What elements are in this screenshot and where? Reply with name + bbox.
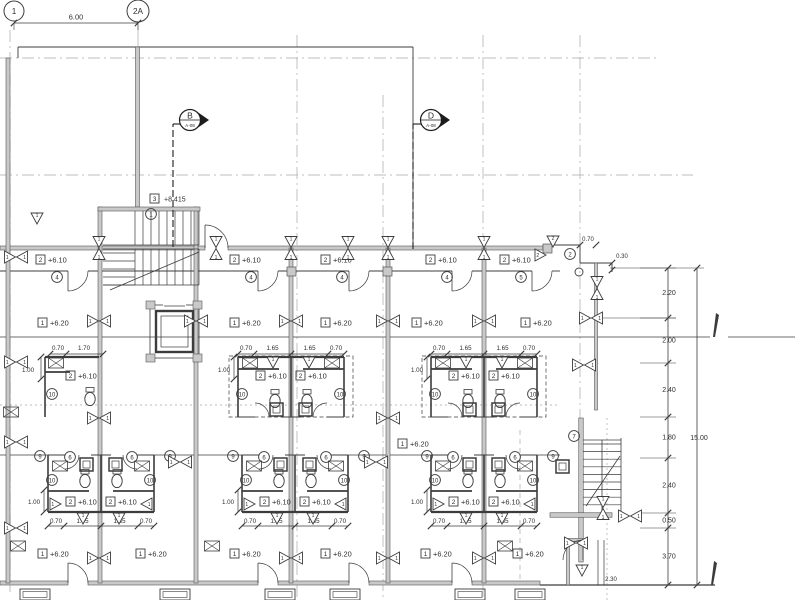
level-box-tag: 2 xyxy=(106,497,115,506)
tag-number: 1 xyxy=(148,502,151,508)
elevator-jamb xyxy=(146,301,155,309)
door-window-tag: 1 xyxy=(460,357,472,368)
keynote-tag: 10 xyxy=(241,475,252,486)
toilet-tank xyxy=(496,390,504,395)
tag-number: 1 xyxy=(89,416,92,422)
threshold xyxy=(268,592,292,598)
rect xyxy=(495,461,502,468)
dim-text: 2.30 xyxy=(605,577,617,583)
level-text: +6.10 xyxy=(78,498,97,507)
tag-number: 1 xyxy=(395,319,398,325)
rect xyxy=(83,461,90,468)
keynote-number: 7 xyxy=(572,434,576,440)
keynote-number: 4 xyxy=(249,275,253,281)
room-level-label: 1+6.20 xyxy=(398,439,429,449)
level-text: +6.20 xyxy=(433,550,452,559)
stairs-layer xyxy=(103,211,621,520)
dim-text: 2 xyxy=(69,373,73,380)
door-swing xyxy=(258,563,278,583)
tag-number: 1 xyxy=(483,255,486,261)
keynote-number: 10 xyxy=(530,392,537,398)
level-box-tag: 2 xyxy=(449,497,458,506)
toilet-bowl xyxy=(302,394,312,407)
section-letter: B xyxy=(187,111,193,121)
door-window-tag: 1 xyxy=(580,312,591,324)
column xyxy=(383,267,392,276)
dim-text: 1.65 xyxy=(459,345,472,352)
dim-text: 2 xyxy=(233,257,237,264)
shower-box xyxy=(274,458,287,471)
sink-fixture xyxy=(53,461,68,471)
door-window-tag: 1 xyxy=(169,456,180,468)
toilet-bowl xyxy=(85,392,95,405)
tag-number: 1 xyxy=(23,360,26,366)
dim-text: 1 xyxy=(233,551,237,558)
dim-text: 1 xyxy=(415,320,419,327)
tag-number: 1 xyxy=(106,556,109,562)
room-level-label: 1+6.20 xyxy=(412,318,443,328)
door-window-tag: 1 xyxy=(524,498,535,510)
keynote-number: 4 xyxy=(340,275,344,281)
sink-fixture xyxy=(243,358,258,368)
dim-text: 2 xyxy=(492,373,496,380)
sink-fixture xyxy=(436,461,451,471)
threshold xyxy=(518,592,542,598)
room-level-label: 1+6.20 xyxy=(321,549,352,559)
keynote-tag: 10 xyxy=(47,389,58,400)
dim-text: 1.00 xyxy=(411,367,424,374)
door-swing xyxy=(532,271,552,291)
door-window-tag: 1 xyxy=(50,498,61,510)
dim-text: 1 xyxy=(41,551,45,558)
rect xyxy=(492,458,505,471)
level-box-tag: 2 xyxy=(300,497,309,506)
level-box-tag: 2 xyxy=(66,497,75,506)
section-marker-d: DA-08 xyxy=(421,110,451,131)
level-box-tag: 1 xyxy=(513,549,522,558)
tag-number: 1 xyxy=(620,514,623,520)
keynote-tag: 6 xyxy=(127,452,138,463)
door-window-tag: 1 xyxy=(88,552,99,564)
tag-number: 1 xyxy=(383,460,386,466)
tag-number: 1 xyxy=(581,316,584,322)
room-level-label: 1+6.20 xyxy=(38,549,69,559)
tag-number: 1 xyxy=(298,319,301,325)
dim-text: 0.70 xyxy=(240,345,253,352)
keynote-number: 10 xyxy=(239,392,246,398)
dim-text: 1.65 xyxy=(303,345,316,352)
threshold xyxy=(455,589,485,600)
keynote-tag: 10 xyxy=(47,475,58,486)
threshold xyxy=(23,592,47,598)
keynote-tag: 6 xyxy=(65,452,76,463)
tag-number: 1 xyxy=(637,514,640,520)
door-window-tag: 1 xyxy=(181,456,192,468)
door-swing xyxy=(452,563,472,583)
corridor-level-label: 2+6.10 xyxy=(426,255,457,265)
sink-fixture xyxy=(135,461,150,471)
tag-number: 1 xyxy=(596,277,599,283)
level-box-tag: 2 xyxy=(256,371,265,380)
pod-level-label: 2+6.10 xyxy=(296,371,327,381)
level-box-tag: 1 xyxy=(412,318,421,327)
keynote-number: 6 xyxy=(451,455,455,461)
level-text: +8.415 xyxy=(164,197,186,204)
wall xyxy=(194,207,198,583)
toilet-fixture xyxy=(274,470,284,488)
room-level-label: 1+6.20 xyxy=(230,318,261,328)
keynote-number: 10 xyxy=(49,392,56,398)
level-box-tag: 2 xyxy=(489,497,498,506)
tag-number: 1 xyxy=(531,502,534,508)
dim-text: 1.00 xyxy=(28,499,41,506)
door-window-tag: 1 xyxy=(433,498,444,510)
wall xyxy=(278,581,349,585)
dim-text: 6.00 xyxy=(69,13,83,22)
elevator-door-gap xyxy=(163,302,186,309)
room-level-label: 1+6.20 xyxy=(521,318,552,328)
tag-number: 2 xyxy=(536,253,539,259)
level-text: +6.20 xyxy=(242,319,261,328)
threshold xyxy=(333,592,357,598)
door-window-tag: 1 xyxy=(591,289,603,302)
keynote-number: 10 xyxy=(341,478,348,484)
keynote-number: 1 xyxy=(149,212,153,218)
break-flag xyxy=(713,313,719,337)
dim-text: 1.00 xyxy=(411,499,424,506)
keynote-tag: 6 xyxy=(510,452,521,463)
dim-text: 0.50 xyxy=(662,518,676,525)
level-box-tag: 1 xyxy=(136,549,145,558)
elevator-jamb xyxy=(146,354,155,362)
tag-number: 1 xyxy=(6,360,9,366)
level-box-tag: 2 xyxy=(230,255,239,264)
door-window-tag: 1 xyxy=(93,249,105,262)
tag-number: 1 xyxy=(272,357,275,363)
level-text: +6.20 xyxy=(525,550,544,559)
tag-number: 1 xyxy=(566,541,569,547)
wall xyxy=(228,246,543,250)
shower-box xyxy=(109,458,122,471)
elevator-jamb xyxy=(193,354,202,362)
tag-number: 1 xyxy=(186,319,189,325)
column xyxy=(543,244,552,253)
wall xyxy=(88,581,258,585)
keynote-number: 6 xyxy=(324,455,328,461)
dim-text: 1.70 xyxy=(78,345,91,352)
toilet-bowl xyxy=(270,394,280,407)
dim-text: 2 xyxy=(503,257,507,264)
tag-number: 1 xyxy=(366,460,369,466)
pod-level-label: 2+6.10 xyxy=(489,371,520,381)
dim-text: 1 xyxy=(424,551,428,558)
rect xyxy=(109,458,122,471)
threshold xyxy=(160,589,190,600)
tag-number: 1 xyxy=(583,541,586,547)
tag-number: 1 xyxy=(215,255,218,261)
tag-number: 1 xyxy=(602,515,605,521)
toilet-tank xyxy=(86,388,94,393)
level-text: +6.10 xyxy=(308,372,327,381)
wall xyxy=(386,248,390,583)
threshold xyxy=(265,589,295,600)
level-box-tag: 2 xyxy=(321,255,330,264)
dim-text: 0.70 xyxy=(523,518,536,525)
level-box-tag: 1 xyxy=(38,549,47,558)
level-text: +6.20 xyxy=(50,550,69,559)
tag-number: 1 xyxy=(89,556,92,562)
tag-number: 1 xyxy=(290,255,293,261)
tag-number: 1 xyxy=(465,513,468,519)
door-window-tag: 1 xyxy=(88,315,99,327)
tag-number: 1 xyxy=(483,237,486,243)
tag-number: 1 xyxy=(387,255,390,261)
tag-number: 1 xyxy=(245,502,248,508)
tag-number: 1 xyxy=(591,363,594,369)
dim-text: 1.65 xyxy=(266,345,279,352)
sink-fixture xyxy=(329,461,344,471)
rect xyxy=(556,460,569,473)
door-swing xyxy=(349,271,369,291)
pod-level-label: 2+6.10 xyxy=(106,497,137,507)
tag-number: 2 xyxy=(552,236,555,242)
dim-text: 2.40 xyxy=(662,387,676,394)
level-box-tag: 3 xyxy=(150,194,159,203)
elevator-jamb xyxy=(193,301,202,309)
rect xyxy=(559,463,566,470)
tag-number: 1 xyxy=(6,526,9,532)
dim-text: 2 xyxy=(109,499,113,506)
tag-number: 1 xyxy=(118,513,121,519)
section-sheet-ref: A-08 xyxy=(426,123,436,128)
pod-level-label: 2+6.10 xyxy=(489,497,520,507)
tag-number: 1 xyxy=(36,213,39,219)
floorplan-sheet: BA-08DA-08 0.701.651.650.701.000.701.651… xyxy=(0,0,800,600)
tag-number: 1 xyxy=(187,460,190,466)
keynote-tag: 9 xyxy=(35,451,46,462)
door-window-tag: 1 xyxy=(17,436,28,448)
tag-number: 1 xyxy=(170,460,173,466)
level-text: +6.20 xyxy=(333,319,352,328)
keynote-tag: 10 xyxy=(430,475,441,486)
keynote-tag: 9 xyxy=(548,451,559,462)
sink-fixture xyxy=(325,358,340,368)
level-text: +6.10 xyxy=(272,498,291,507)
dim-text: 0.70 xyxy=(582,237,594,243)
keynote-number: 10 xyxy=(432,478,439,484)
tag-number: 1 xyxy=(276,513,279,519)
tag-number: 1 xyxy=(106,319,109,325)
tag-number: 1 xyxy=(106,416,109,422)
level-box-tag: 2 xyxy=(449,371,458,380)
room-level-label: 1+6.20 xyxy=(230,549,261,559)
pod-level-label: 2+6.10 xyxy=(256,371,287,381)
dim-text: 0.70 xyxy=(50,518,63,525)
column-circle xyxy=(575,268,583,276)
level-box-tag: 1 xyxy=(38,318,47,327)
tag-number: 1 xyxy=(6,255,9,261)
tag-number: 1 xyxy=(474,319,477,325)
tag-number: 1 xyxy=(574,363,577,369)
dim-text: 1.00 xyxy=(218,367,231,374)
tag-number: 1 xyxy=(598,316,601,322)
level-text: +6.10 xyxy=(501,372,520,381)
door-swing xyxy=(258,271,278,291)
level-text: +6.10 xyxy=(438,256,457,265)
shower-box xyxy=(463,458,476,471)
toilet-fixture xyxy=(463,470,473,488)
grid-bubble: 1 xyxy=(4,1,24,21)
threshold xyxy=(515,589,545,600)
keynote-tag: 10 xyxy=(237,389,248,400)
toilet-fixture xyxy=(80,470,90,488)
sink-fixture xyxy=(11,541,26,551)
door-window-tag: 1 xyxy=(210,237,222,248)
pod-level-label: 2+6.10 xyxy=(300,497,331,507)
toilet-bowl xyxy=(306,474,316,487)
keynote-tag: 10 xyxy=(430,389,441,400)
dim-text: 0.70 xyxy=(433,345,446,352)
level-box-tag: 1 xyxy=(230,549,239,558)
level-box-tag: 1 xyxy=(398,439,407,448)
toilet-fixture xyxy=(495,470,505,488)
door-swing xyxy=(68,563,88,583)
tag-number: 1 xyxy=(434,502,437,508)
dim-text: 2 xyxy=(324,257,328,264)
grid-bubble-label: 1 xyxy=(12,7,17,16)
shower-box xyxy=(80,458,93,471)
level-text: +6.10 xyxy=(501,498,520,507)
door-swing xyxy=(452,271,472,291)
column xyxy=(287,267,296,276)
door-window-tag: 1 xyxy=(210,249,222,262)
level-text: +6.20 xyxy=(410,440,429,449)
door-window-tag: 1 xyxy=(365,456,376,468)
tag-number: 1 xyxy=(378,416,381,422)
level-box-tag: 2 xyxy=(500,255,509,264)
level-text: +6.20 xyxy=(50,319,69,328)
tag-number: 1 xyxy=(98,237,101,243)
tag-number: 1 xyxy=(82,513,85,519)
door-window-tag: 1 xyxy=(17,522,28,534)
door-window-tag: 1 xyxy=(585,359,596,371)
tag-number: 1 xyxy=(378,319,381,325)
threshold xyxy=(20,589,50,600)
room-level-label: 1+6.20 xyxy=(421,549,452,559)
threshold xyxy=(330,589,360,600)
corridor-level-label: 2+6.10 xyxy=(36,255,67,265)
level-box-tag: 1 xyxy=(421,549,430,558)
section-cut-lines-layer: BA-08DA-08 xyxy=(173,110,450,250)
door-swing xyxy=(506,403,520,417)
door-window-tag: 1 xyxy=(573,359,584,371)
keynote-number: 5 xyxy=(519,275,523,281)
pod-level-label: 2+6.10 xyxy=(449,497,480,507)
dim-text: 2.20 xyxy=(662,290,676,297)
door-swing xyxy=(349,563,369,583)
keynote-number: 2 xyxy=(568,252,572,258)
toilet-tank xyxy=(303,390,311,395)
corridor-level-label: 2+6.10 xyxy=(230,255,261,265)
dim-text: 2 xyxy=(452,499,456,506)
floor-plan-canvas: BA-08DA-08 0.701.651.650.701.000.701.651… xyxy=(0,0,800,600)
dim-text: 1.65 xyxy=(496,345,509,352)
door-window-tag: 1 xyxy=(88,412,99,424)
dim-text: 2 xyxy=(259,373,263,380)
tag-number: 1 xyxy=(23,526,26,532)
tag-number: 1 xyxy=(98,255,101,261)
wall xyxy=(6,58,10,583)
tag-number: 1 xyxy=(342,502,345,508)
level-box-tag: 1 xyxy=(521,318,530,327)
level-text: +6.10 xyxy=(461,372,480,381)
toilet-bowl xyxy=(463,394,473,407)
level-text: +6.10 xyxy=(242,256,261,265)
room-level-label: 1+6.20 xyxy=(136,549,167,559)
elevator-cab xyxy=(161,316,188,347)
dim-text: 0.70 xyxy=(52,345,65,352)
toilet-fixture xyxy=(463,390,473,408)
pod-level-label: 2+6.10 xyxy=(449,371,480,381)
sink-fixture xyxy=(436,358,451,368)
section-marker-b: BA-08 xyxy=(180,110,210,131)
dim-text: 0.70 xyxy=(334,518,347,525)
tag-number: 1 xyxy=(281,319,284,325)
door-window-tag: 1 xyxy=(382,249,394,262)
keynote-tag: 4 xyxy=(246,272,257,283)
door-window-tag: 1 xyxy=(244,498,255,510)
dim-text: 1 xyxy=(324,551,328,558)
keynote-number: 10 xyxy=(147,478,154,484)
keynote-number: 6 xyxy=(262,455,266,461)
door-window-tag: 1 xyxy=(478,249,490,262)
tag-number: 1 xyxy=(347,255,350,261)
level-box-tag: 2 xyxy=(426,255,435,264)
tag-number: 1 xyxy=(6,440,9,446)
toilet-fixture xyxy=(85,388,95,406)
tag-number: 1 xyxy=(89,319,92,325)
rect xyxy=(277,461,284,468)
toilet-bowl xyxy=(112,474,122,487)
dim-text: 0.70 xyxy=(244,518,257,525)
tag-number: 1 xyxy=(298,556,301,562)
tag-number: 1 xyxy=(23,255,26,261)
tag-number: 1 xyxy=(312,513,315,519)
sink-fixture xyxy=(498,541,513,551)
door-window-tag: 1 xyxy=(267,357,279,368)
toilet-fixture xyxy=(270,390,280,408)
tag-number: 1 xyxy=(347,237,350,243)
toilet-bowl xyxy=(495,474,505,487)
grid-bubble-label: 2A xyxy=(133,7,144,16)
door-window-tag: 1 xyxy=(496,357,508,368)
door-window-tag: 1 xyxy=(303,357,315,368)
corridor-level-label: 2+6.10 xyxy=(500,255,531,265)
pod-level-label: 2+6.10 xyxy=(260,497,291,507)
keynote-tag: 9 xyxy=(228,451,239,462)
rect xyxy=(303,458,316,471)
dim-text: 1 xyxy=(41,320,45,327)
shower-box xyxy=(492,458,505,471)
dim-text: 1 xyxy=(139,551,143,558)
level-text: +6.10 xyxy=(512,256,531,265)
keynote-tag: 7 xyxy=(569,431,580,442)
tag-number: 1 xyxy=(581,565,584,571)
keynote-number: 10 xyxy=(432,392,439,398)
keynote-tag: 5 xyxy=(516,272,527,283)
level-text: +6.20 xyxy=(242,550,261,559)
dim-text: 2 xyxy=(299,373,303,380)
